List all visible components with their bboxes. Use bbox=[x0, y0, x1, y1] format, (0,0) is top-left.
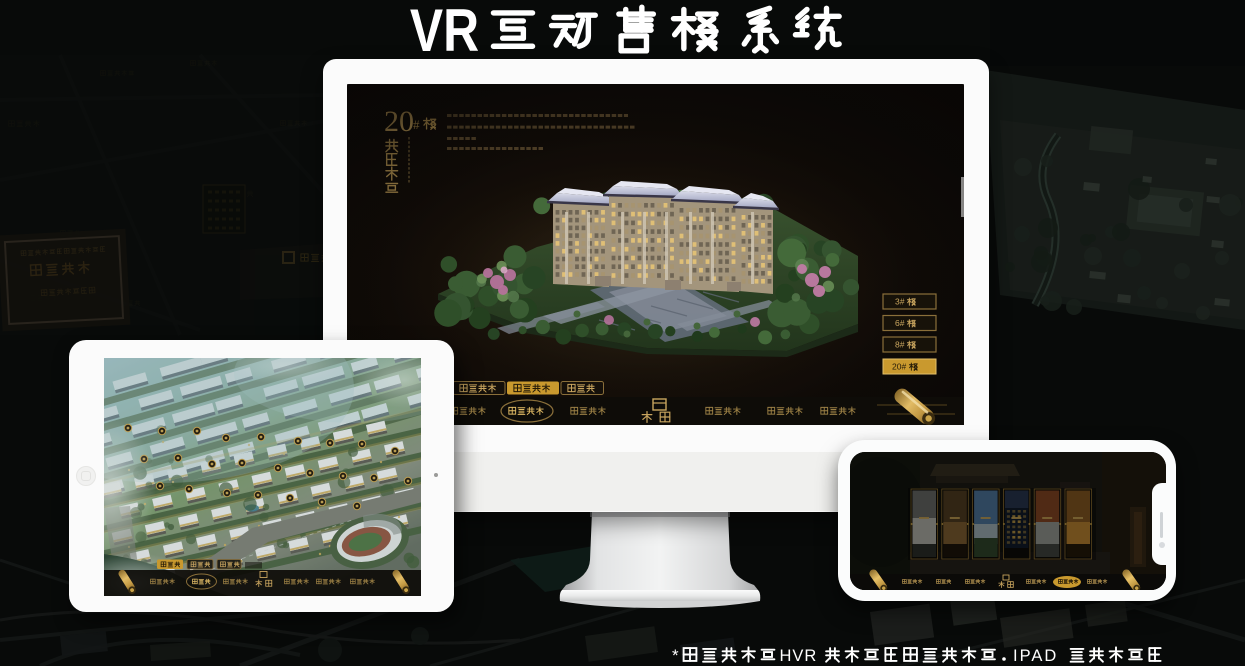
svg-text:IPAD: IPAD bbox=[1013, 647, 1058, 665]
svg-text:20#: 20# bbox=[892, 362, 906, 372]
svg-text:3#: 3# bbox=[895, 297, 905, 307]
svg-text:VR: VR bbox=[410, 0, 479, 60]
svg-text:HVR: HVR bbox=[780, 647, 818, 665]
svg-text:*: * bbox=[672, 646, 679, 665]
svg-text:6#: 6# bbox=[895, 318, 905, 328]
svg-text:8#: 8# bbox=[895, 340, 905, 350]
